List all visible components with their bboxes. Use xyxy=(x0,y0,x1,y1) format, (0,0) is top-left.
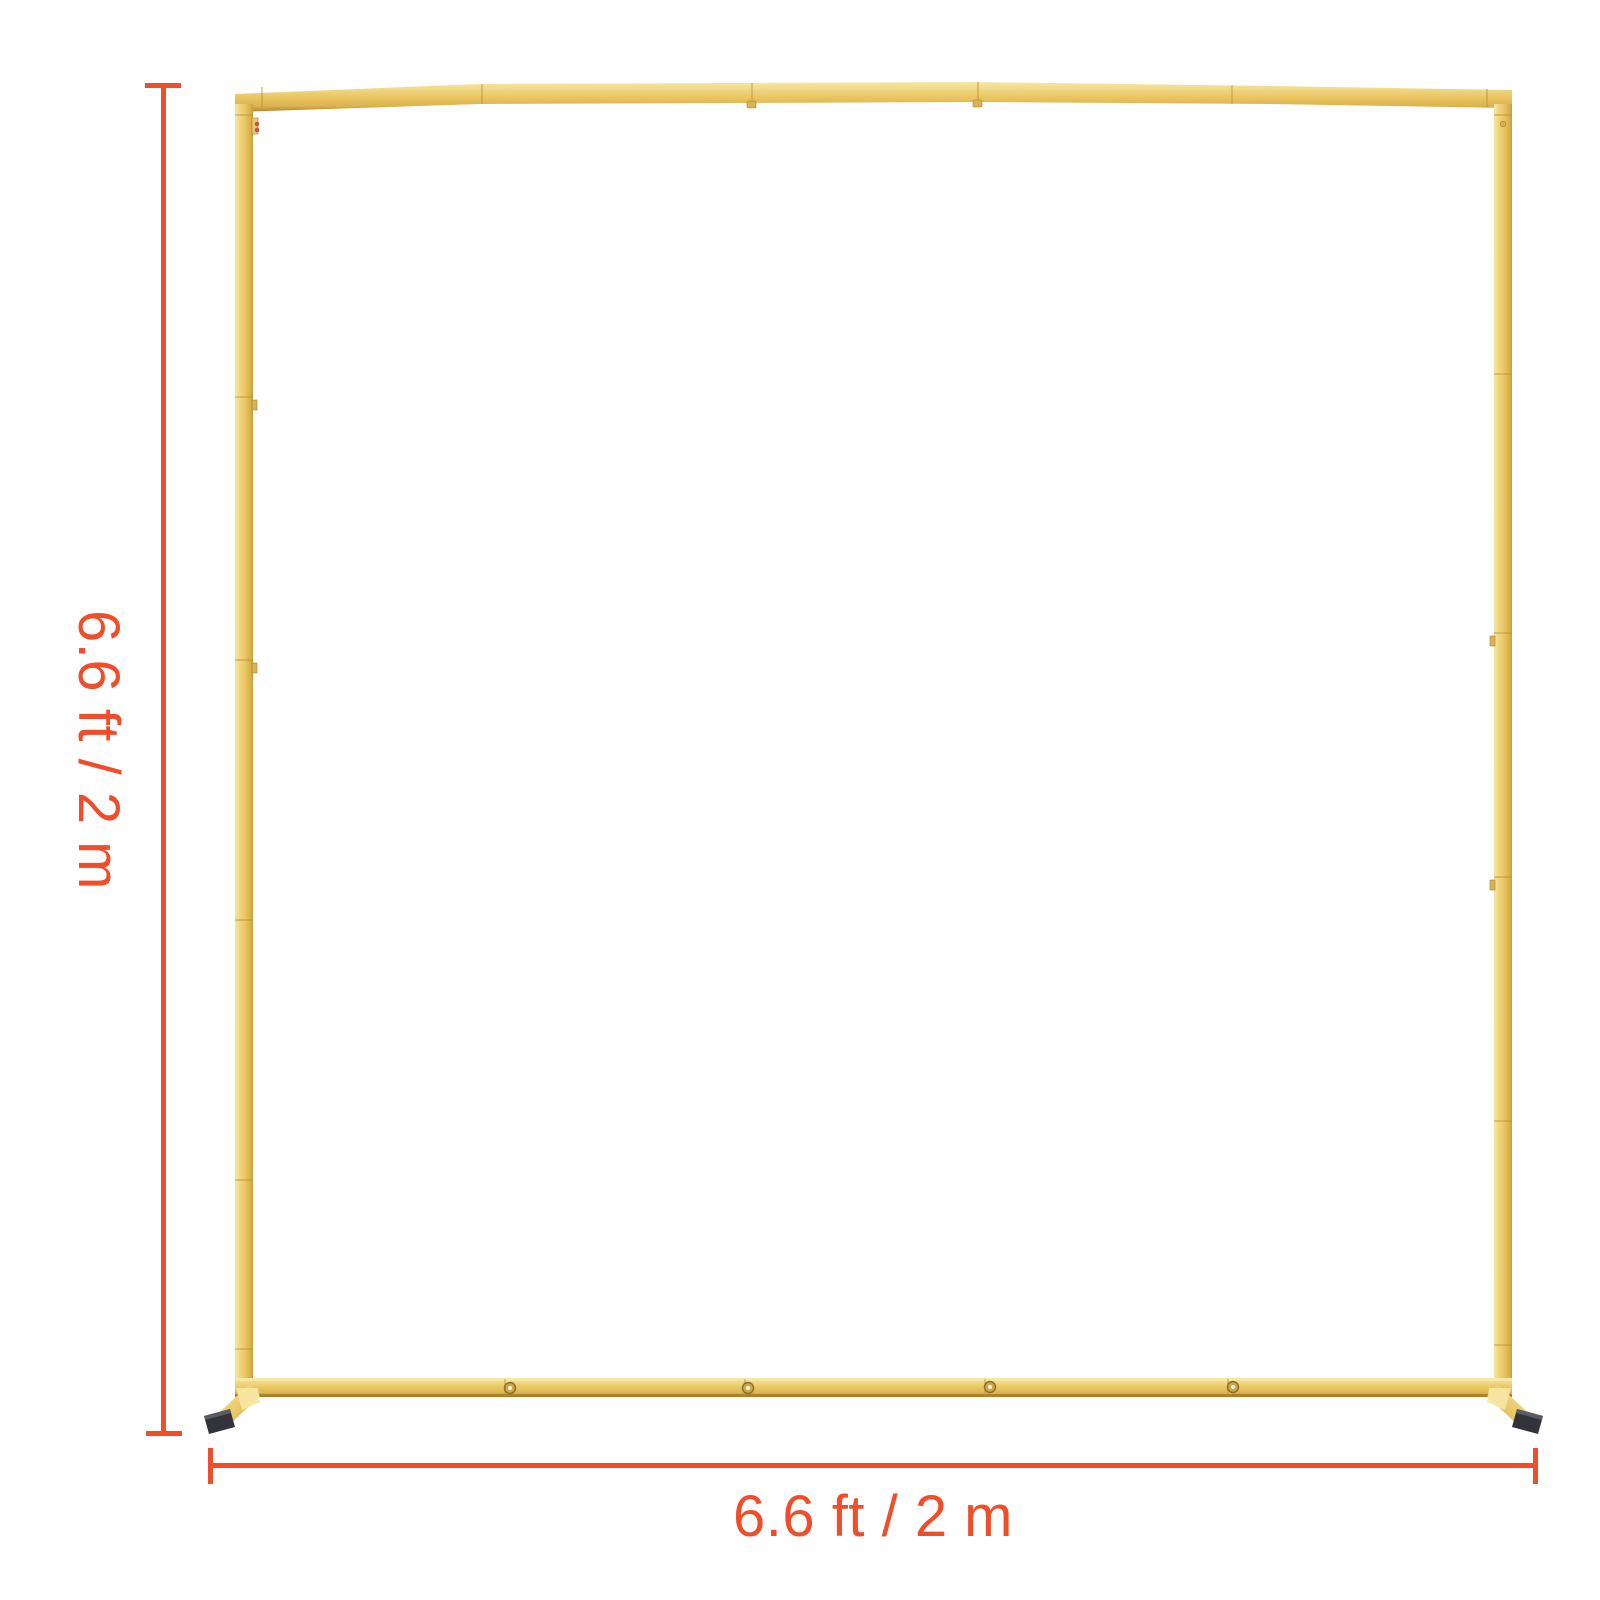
corner-screw-icon xyxy=(255,122,260,127)
frame-right-foot xyxy=(1487,1384,1543,1434)
height-dimension-line xyxy=(161,85,166,1435)
corner-screw-icon xyxy=(255,128,260,133)
height-dimension-cap-bottom xyxy=(146,1431,182,1436)
frame-bottom-bar xyxy=(235,1378,1512,1397)
bolt-icon xyxy=(985,1382,996,1393)
frame-left-upright xyxy=(235,104,259,1397)
bolt-icon xyxy=(743,1383,754,1394)
width-dimension-cap-left xyxy=(208,1448,213,1484)
frame-top-bar xyxy=(235,82,1512,112)
backdrop-frame-illustration xyxy=(0,0,1600,1600)
width-dimension-line xyxy=(210,1463,1537,1468)
width-dimension-cap-right xyxy=(1533,1448,1538,1484)
width-dimension-label: 6.6 ft / 2 m xyxy=(733,1488,1013,1546)
corner-screw-icon xyxy=(1500,121,1506,127)
product-dimension-diagram: 6.6 ft / 2 m 6.6 ft / 2 m xyxy=(0,0,1600,1600)
bolt-icon xyxy=(1228,1382,1239,1393)
bolt-icon xyxy=(505,1383,516,1394)
frame-left-foot xyxy=(204,1384,260,1434)
height-dimension-label: 6.6 ft / 2 m xyxy=(69,610,127,890)
height-dimension-cap-top xyxy=(145,83,181,88)
frame-right-upright xyxy=(1490,104,1512,1397)
